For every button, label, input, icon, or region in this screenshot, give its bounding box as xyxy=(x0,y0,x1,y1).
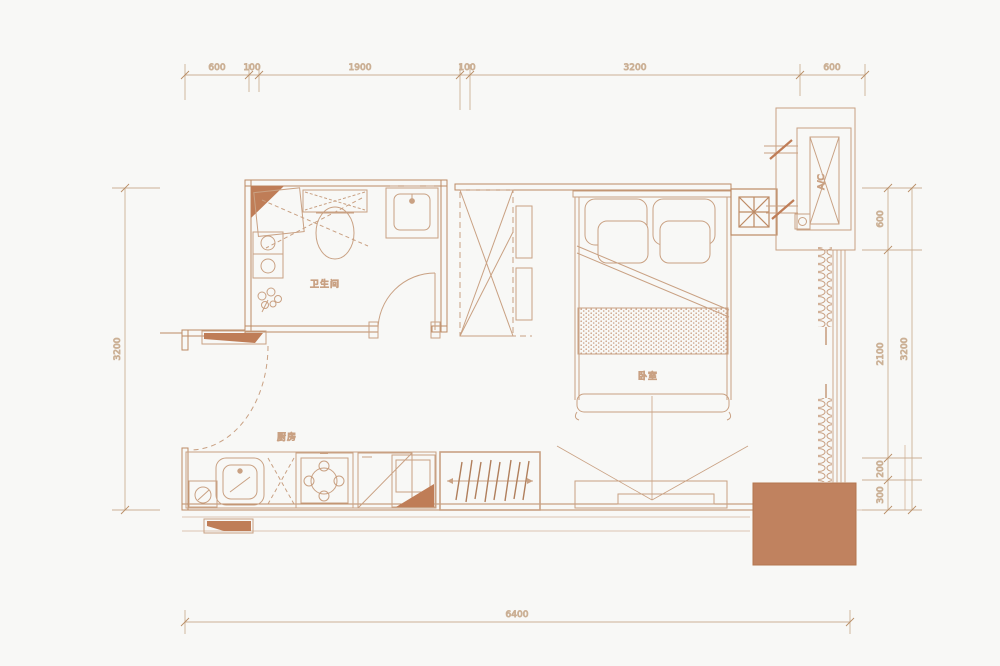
dim-top-100a: 100 xyxy=(243,63,260,73)
rod-arrow-right xyxy=(527,478,533,484)
door-swing-arc xyxy=(378,273,435,330)
floor-plan-drawing: 卫生间 卧室 xyxy=(0,0,1000,666)
window-wall xyxy=(833,250,855,483)
wall-bathroom-top xyxy=(245,180,447,186)
dim-left: 3200 xyxy=(112,184,160,514)
dim-left-3200: 3200 xyxy=(113,337,123,360)
wall-bedroom-top xyxy=(455,184,731,190)
wardrobe xyxy=(440,452,540,510)
dim-top-3200: 3200 xyxy=(624,63,647,73)
toilet-bowl xyxy=(316,207,354,259)
blanket-band xyxy=(578,308,728,354)
entry-door-fill xyxy=(204,333,263,343)
closet-panel-top xyxy=(516,206,532,258)
bed-foot-right xyxy=(727,412,731,420)
blanket-fold-2 xyxy=(577,253,729,317)
step-wedge-fill xyxy=(207,521,251,531)
bathroom-label: 卫生间 xyxy=(310,278,340,290)
wall-break-bottom xyxy=(766,200,798,219)
curtain-coil-top xyxy=(818,247,832,327)
dim-right-3200: 3200 xyxy=(900,337,910,360)
dim-top-600b: 600 xyxy=(823,63,840,73)
stove-inner xyxy=(301,458,348,503)
closet-panel-bottom xyxy=(516,268,532,320)
dim-bottom-6400: 6400 xyxy=(506,610,529,620)
dim-right-inner: 600 2100 200 300 xyxy=(862,184,922,514)
bathroom: 卫生间 xyxy=(251,186,440,338)
entry-door xyxy=(190,331,268,450)
kitchen-sink xyxy=(216,458,264,505)
sink-faucet-icon xyxy=(238,469,242,473)
kitchen-label: 厨房 xyxy=(277,431,297,443)
dim-top-600a: 600 xyxy=(208,63,225,73)
plant-icon xyxy=(258,288,282,312)
corner-cabinet xyxy=(392,455,435,507)
dryer-unit xyxy=(253,254,283,278)
wall-break-top xyxy=(764,140,798,159)
curtains xyxy=(818,247,832,482)
wall-bathroom-right xyxy=(441,180,447,332)
double-bed xyxy=(573,191,731,420)
washer-drum xyxy=(261,236,275,250)
washbasin xyxy=(386,186,438,238)
dim-right-outer: 3200 xyxy=(900,184,922,514)
dim-top-1900: 1900 xyxy=(349,63,372,73)
ac-drain-icon xyxy=(799,218,807,226)
bed-footboard xyxy=(577,394,729,412)
cushion-left xyxy=(598,221,648,263)
fridge xyxy=(358,453,412,508)
dim-right-2100: 2100 xyxy=(876,342,886,365)
rod-arrow-left xyxy=(447,478,453,484)
dim-top: 600 100 1900 100 3200 600 xyxy=(181,63,869,110)
bed-foot-left xyxy=(575,412,579,420)
bed-headboard xyxy=(573,191,731,197)
wall-bottom xyxy=(182,504,753,510)
wall-bathroom-left xyxy=(245,180,251,332)
dim-right-300: 300 xyxy=(876,486,886,503)
floor-plan-canvas: 卫生间 卧室 xyxy=(0,0,1000,666)
curtain-coil-bottom xyxy=(818,398,832,482)
dim-right-200: 200 xyxy=(876,460,886,477)
toilet xyxy=(303,190,367,259)
shaft-column xyxy=(731,189,777,235)
bedroom: 卧室 xyxy=(557,191,748,500)
closet-diag-3 xyxy=(460,232,513,336)
ac-platform-outer xyxy=(776,108,855,250)
dim-top-100b: 100 xyxy=(458,63,475,73)
dryer-drum xyxy=(261,259,275,273)
closet xyxy=(460,190,532,336)
burner-center xyxy=(311,468,337,494)
dim-right-600: 600 xyxy=(876,210,886,227)
cushion-right xyxy=(660,221,710,263)
bedroom-label: 卧室 xyxy=(638,370,658,382)
entry-kitchen: 厨房 xyxy=(186,331,436,533)
tv-screen xyxy=(618,494,714,504)
entry-door-arc xyxy=(190,346,268,450)
door-jamb-left xyxy=(369,322,378,338)
ac-platform: A/C xyxy=(764,108,855,250)
ac-label: A/C xyxy=(817,174,827,189)
bathroom-door xyxy=(369,273,440,338)
dim-bottom: 6400 xyxy=(181,610,854,634)
terrace-fill-block xyxy=(753,483,856,565)
wall-left-lower xyxy=(182,448,188,510)
gas-stove xyxy=(296,453,353,508)
fridge-diagonal xyxy=(358,453,412,508)
wall-left-upper-stub xyxy=(182,330,188,350)
